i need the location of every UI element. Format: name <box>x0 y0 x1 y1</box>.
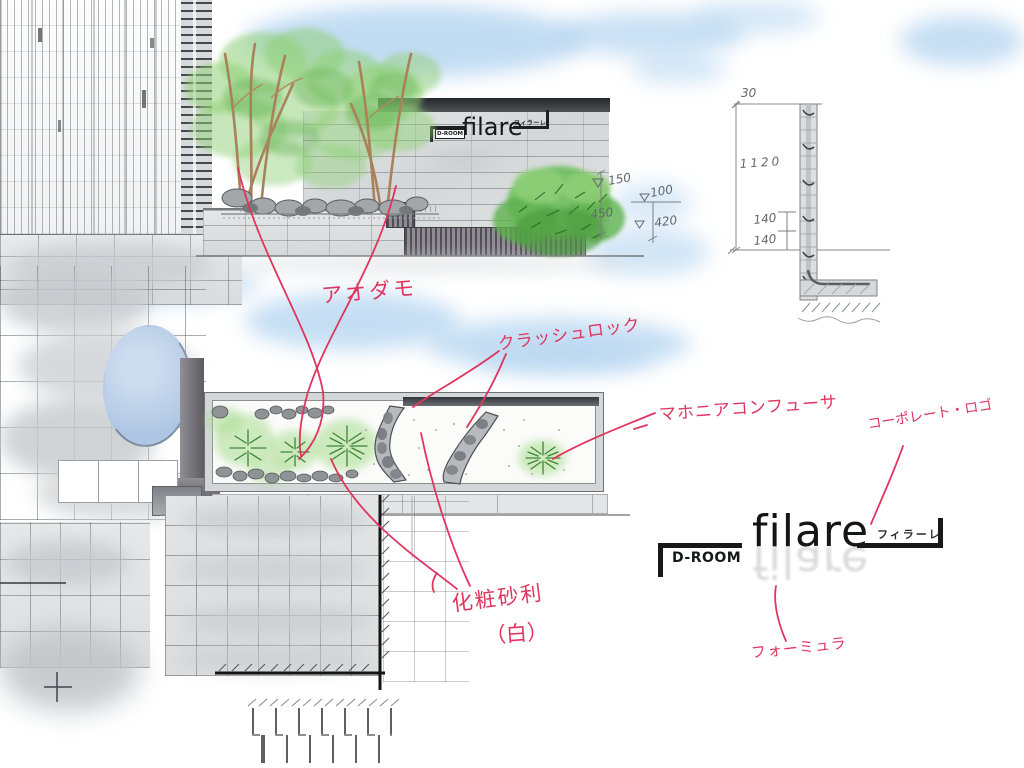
wall-mottle <box>430 150 495 168</box>
dim-420: 420 <box>653 213 678 230</box>
landscape-sketch-canvas: D-ROOM filare フィラーレ <box>0 0 1024 768</box>
logo-droom-text: D-ROOM <box>672 550 741 566</box>
section-dim-140b: 140 <box>753 232 778 248</box>
ground-scribble <box>798 317 880 324</box>
section-140-ticks <box>778 212 796 250</box>
annotation-formula: フォーミュラ <box>750 632 848 663</box>
section-dim-30: 30 <box>741 86 757 100</box>
stripe-paving-row2 <box>252 735 392 763</box>
building-facade <box>0 0 181 234</box>
ground-hatch <box>802 303 880 312</box>
aodamo-trees <box>193 28 433 220</box>
stripe-paving-row1 <box>252 708 392 735</box>
logo-filare-reflection: filare <box>752 536 869 587</box>
facade-window-tick <box>38 28 42 42</box>
dim-100: 100 <box>649 182 674 200</box>
section-wall-core <box>806 104 811 290</box>
annotation-mahonia: マホニアコンフューサ <box>658 388 838 425</box>
section-dim-140a: 140 <box>753 211 778 227</box>
sky-wash <box>690 0 820 34</box>
logo-bracket-left-v <box>658 543 663 577</box>
logo-bracket-right-h <box>857 543 943 548</box>
section-dim-1120: 1120 <box>739 154 782 171</box>
boundary-hatch-top <box>219 664 369 671</box>
facade-window-tick <box>142 90 146 108</box>
bed-rock-band-a <box>375 406 406 482</box>
bed-contents <box>212 400 596 484</box>
leader-corporate-logo <box>871 446 903 524</box>
tree-foliage <box>185 28 441 188</box>
dim-450: 450 <box>589 205 614 222</box>
annotation-gravel-line2: （白） <box>484 616 549 650</box>
lower-hatch-row <box>248 699 399 706</box>
sign-bracket-right-v <box>546 110 549 129</box>
sign-katakana-text: フィラーレ <box>514 118 546 127</box>
elevation-dimensions: 150 450 100 420 <box>585 163 710 253</box>
facade-window-tick <box>58 120 61 132</box>
leader-formula <box>775 586 786 641</box>
bed-rock-band-b <box>443 412 498 484</box>
boundary-hatch-right <box>382 495 389 658</box>
annotation-corporate-logo: コーポレート・ロゴ <box>866 394 994 433</box>
plaza-boundary-lines <box>163 488 443 728</box>
dim-150: 150 <box>607 170 632 188</box>
plan-cross-mark-h <box>44 686 72 688</box>
logo-katakana-text: フィラーレ <box>877 526 942 542</box>
plan-dark-line <box>0 582 66 584</box>
leader-mahonia-tick <box>634 425 647 429</box>
logo-bracket-left-h <box>658 543 742 548</box>
watercolor-wash <box>5 540 130 585</box>
watercolor-wash <box>0 272 150 334</box>
watercolor-wash <box>0 628 140 712</box>
sky-wash <box>900 16 1024 66</box>
section-detail: 30 1120 140 140 <box>722 80 904 330</box>
facade-window-tick <box>150 38 154 48</box>
sign-droom-box: D-ROOM <box>435 129 465 139</box>
plan-wall-band-v <box>180 358 204 485</box>
sky-wash <box>630 52 726 84</box>
wall-sign: D-ROOM filare フィラーレ <box>424 106 574 148</box>
